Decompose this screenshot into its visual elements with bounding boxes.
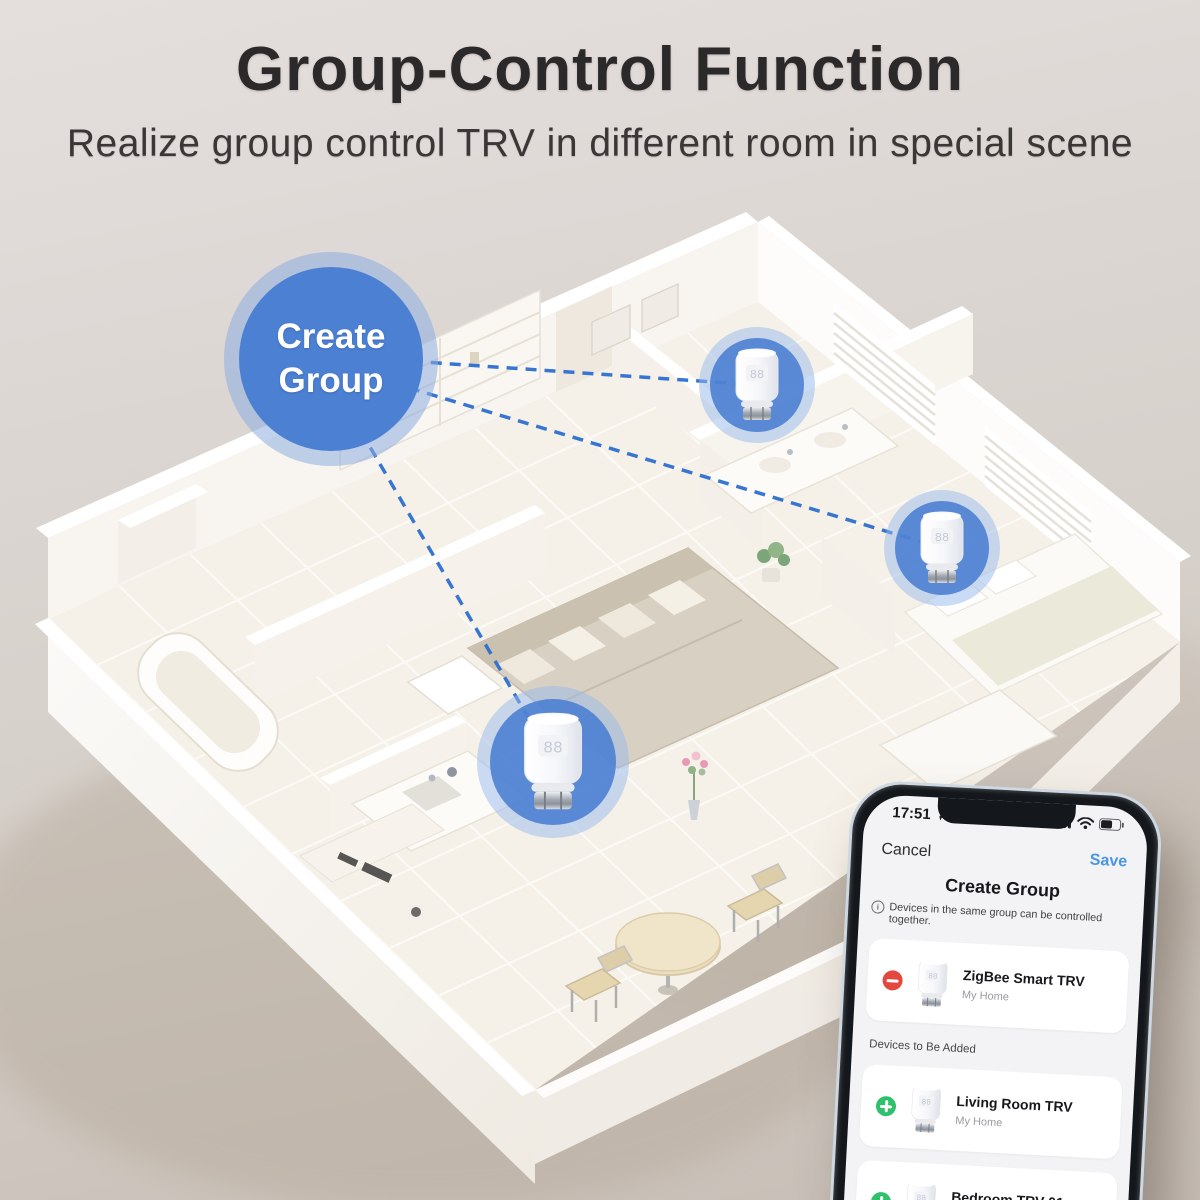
device-name: Bedroom TRV 01 bbox=[951, 1189, 1064, 1200]
info-banner: i Devices in the same group can be contr… bbox=[859, 900, 1144, 939]
trv-marker-living-room bbox=[477, 686, 629, 838]
device-card-bedroom-trv-01[interactable]: Bedroom TRV 01 My Home bbox=[854, 1160, 1118, 1200]
remove-device-icon[interactable] bbox=[882, 970, 903, 991]
trv-thumbnail-icon bbox=[901, 1177, 942, 1200]
create-group-callout: Create Group bbox=[224, 252, 438, 466]
trv-thumbnail-icon bbox=[906, 1081, 947, 1135]
phone-mockup: 17:51 bbox=[821, 779, 1164, 1200]
create-group-circle: Create Group bbox=[239, 267, 423, 451]
trv-marker-bedroom bbox=[884, 490, 1000, 606]
add-device-icon[interactable] bbox=[875, 1096, 896, 1117]
wifi-icon bbox=[1077, 816, 1095, 829]
add-device-icon[interactable] bbox=[870, 1192, 891, 1200]
info-icon: i bbox=[871, 900, 885, 914]
device-name: Living Room TRV bbox=[956, 1093, 1073, 1115]
phone-frame: 17:51 bbox=[821, 779, 1164, 1200]
callout-line2: Group bbox=[279, 359, 384, 403]
device-location: My Home bbox=[955, 1115, 1072, 1133]
phone-screen: 17:51 bbox=[835, 794, 1149, 1200]
status-time: 17:51 bbox=[892, 804, 931, 823]
callout-line1: Create bbox=[277, 315, 386, 359]
trv-thumbnail-icon bbox=[912, 956, 953, 1010]
marketing-image: Group-Control Function Realize group con… bbox=[0, 0, 1200, 1200]
battery-icon bbox=[1099, 817, 1125, 830]
save-button[interactable]: Save bbox=[1089, 852, 1127, 872]
device-card-living-room-trv[interactable]: Living Room TRV My Home bbox=[859, 1064, 1123, 1159]
device-card-zigbee-smart-trv[interactable]: ZigBee Smart TRV My Home bbox=[865, 938, 1129, 1033]
cancel-button[interactable]: Cancel bbox=[881, 841, 932, 862]
device-name: ZigBee Smart TRV bbox=[963, 967, 1086, 989]
info-text: Devices in the same group can be control… bbox=[888, 901, 1131, 938]
section-label-devices-to-add: Devices to Be Added bbox=[869, 1038, 1136, 1064]
trv-marker-bathroom bbox=[699, 327, 815, 443]
device-location: My Home bbox=[962, 989, 1084, 1007]
